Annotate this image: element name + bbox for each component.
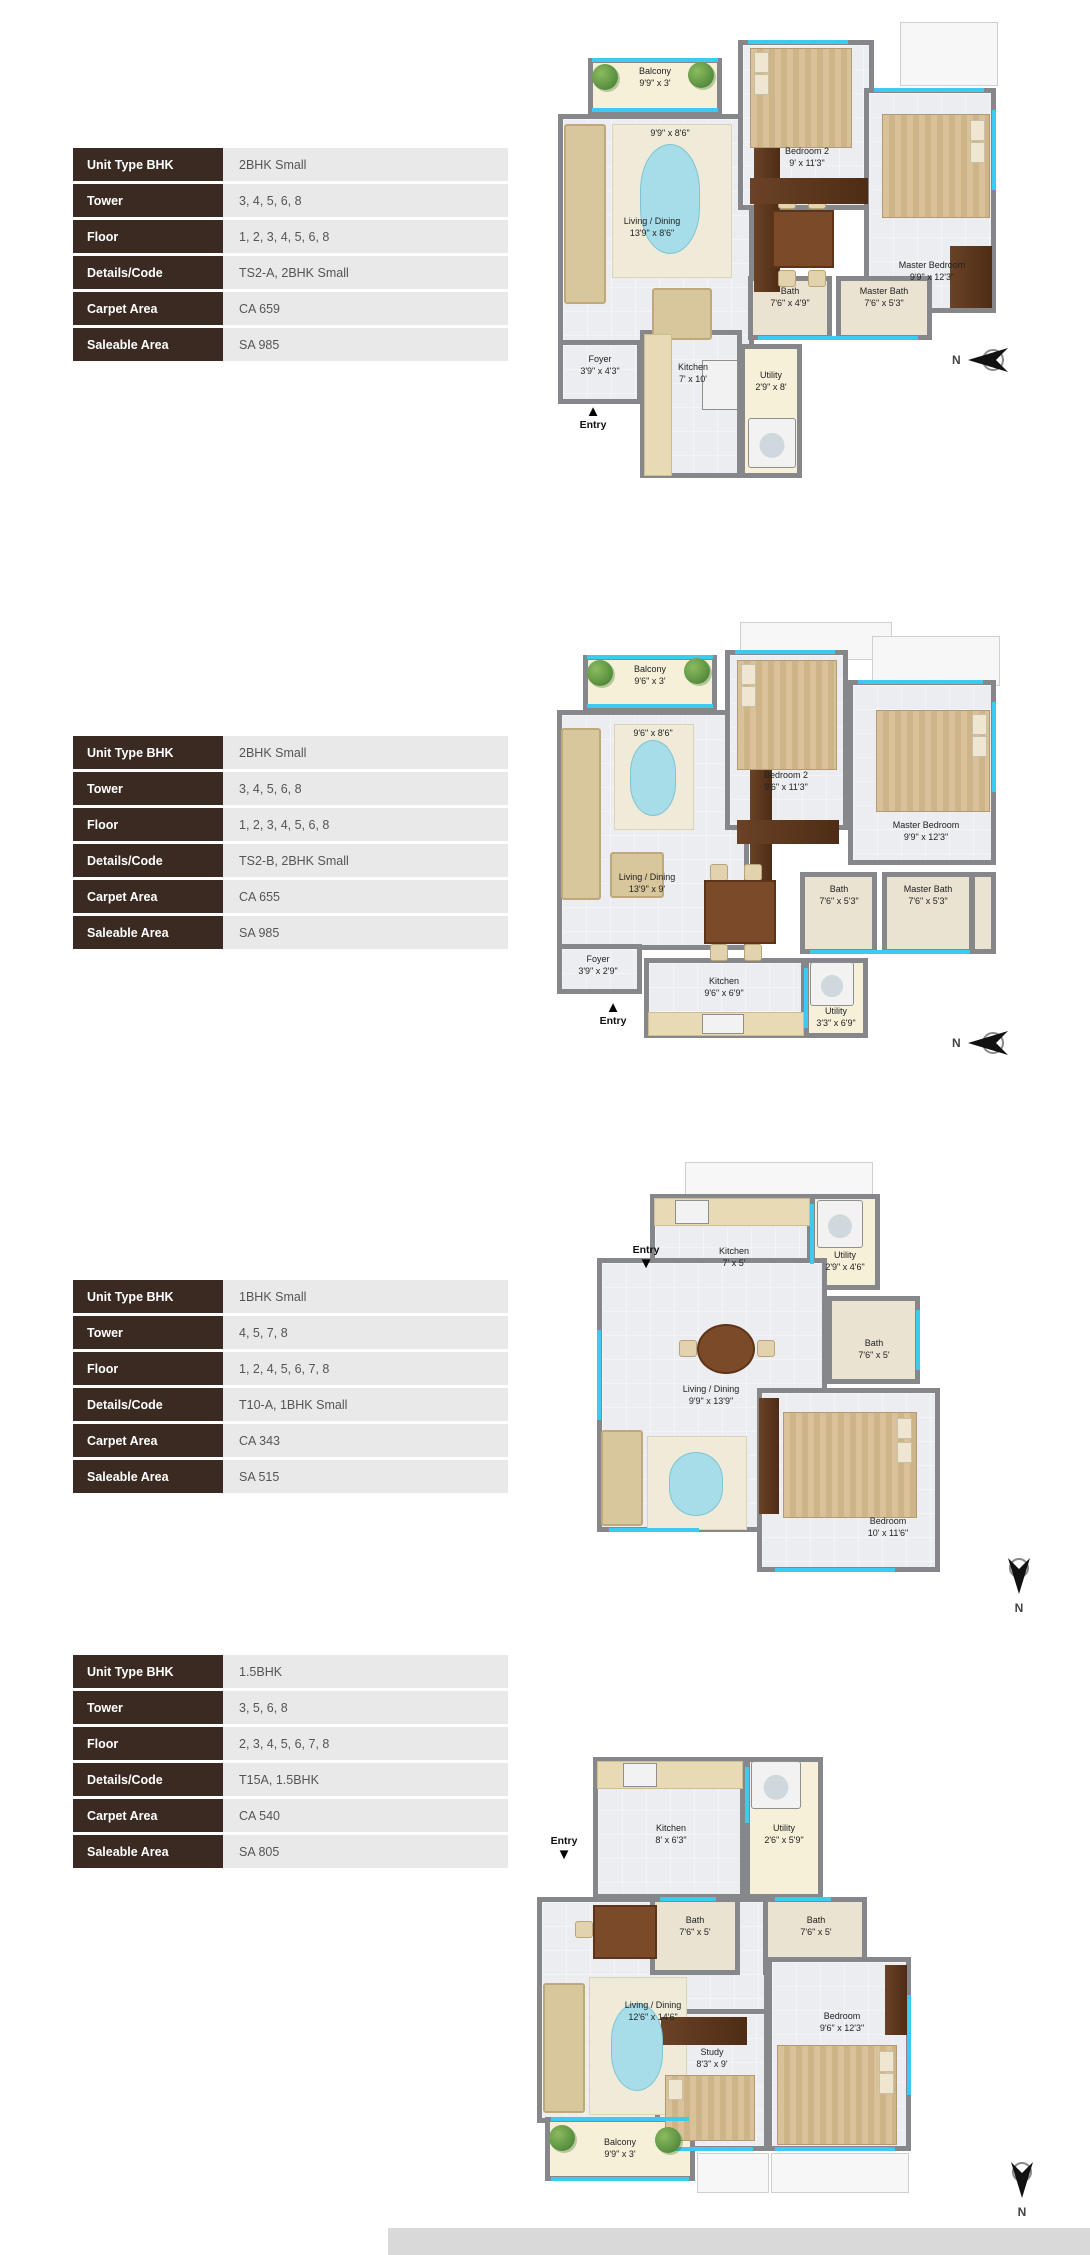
window	[597, 1330, 601, 1420]
pillow	[879, 2051, 894, 2072]
floorplan-ts2a: Balcony9'9" x 3' 9'9" x 8'6" Bedroom 29'…	[552, 20, 1000, 482]
room-dims: 7'6" x 5'3"	[840, 298, 928, 310]
room-dims: 12'6" x 14'6"	[593, 2012, 713, 2024]
room-name: Living / Dining	[593, 2000, 713, 2012]
room-dims: 2'9" x 4'6"	[811, 1262, 879, 1274]
entry-arrow-icon: ▲	[570, 404, 616, 419]
room-name: Kitchen	[699, 1246, 769, 1258]
table-row-value: SA 985	[223, 328, 508, 361]
window	[748, 40, 848, 44]
room-name: Bath	[655, 1915, 735, 1927]
chair	[778, 270, 796, 287]
table-row-label: Saleable Area	[73, 1835, 223, 1868]
room-dims: 2'9" x 8'	[744, 382, 798, 394]
table-row-label: Unit Type BHK	[73, 1655, 223, 1688]
chair	[744, 944, 762, 961]
entry-marker: Entry▼	[623, 1244, 669, 1271]
room-label-living: Living / Dining13'9" x 9'	[587, 872, 707, 895]
room-dims: 9'9" x 3'	[615, 78, 695, 90]
entry-arrow-icon: ▼	[541, 1847, 587, 1862]
room-name: Bedroom 2	[730, 770, 842, 782]
table-row-value: 1, 2, 3, 4, 5, 6, 8	[223, 220, 508, 253]
wardrobe	[759, 1398, 779, 1514]
washer-icon	[751, 1761, 801, 1809]
table-row-label: Saleable Area	[73, 328, 223, 361]
compass-icon	[1007, 2160, 1037, 2200]
room-name: Utility	[744, 370, 798, 382]
washer-icon	[817, 1200, 863, 1248]
chair	[575, 1921, 593, 1938]
room-label-bedroom2: Bedroom 29'6" x 11'3"	[730, 770, 842, 793]
table-row-label: Tower	[73, 184, 223, 217]
room-dims: 9'6" x 6'9"	[674, 988, 774, 1000]
ac-ledge	[685, 1162, 873, 1196]
table-row-value: 1, 2, 3, 4, 5, 6, 8	[223, 808, 508, 841]
room-name: Living / Dining	[587, 872, 707, 884]
table-row-value: TS2-B, 2BHK Small	[223, 844, 508, 877]
dining-table	[697, 1324, 755, 1374]
pillow	[879, 2073, 894, 2094]
room-dims: 13'9" x 9'	[587, 884, 707, 896]
room-label-living: Living / Dining9'9" x 13'9"	[651, 1384, 771, 1407]
compass-icon	[1004, 1556, 1034, 1596]
room-dims: 9' x 11'3"	[750, 158, 864, 170]
room-label-master-bath: Master Bath7'6" x 5'3"	[840, 286, 928, 309]
table-row: Floor1, 2, 3, 4, 5, 6, 8	[73, 808, 508, 841]
table-row-label: Carpet Area	[73, 1799, 223, 1832]
room-label-bath2: Bath7'6" x 5'	[771, 1915, 861, 1938]
room-label-bath: Bath7'6" x 4'9"	[752, 286, 828, 309]
room-name: Master Bath	[840, 286, 928, 298]
chair	[744, 864, 762, 881]
kitchen-counter	[644, 334, 672, 476]
entry-label: Entry	[590, 1015, 636, 1027]
table-row-value: 1, 2, 4, 5, 6, 7, 8	[223, 1352, 508, 1385]
table-row-label: Tower	[73, 1316, 223, 1349]
table-row-value: CA 343	[223, 1424, 508, 1457]
entry-arrow-icon: ▼	[623, 1256, 669, 1271]
chair	[757, 1340, 775, 1357]
room-label-bath1: Bath7'6" x 5'	[655, 1915, 735, 1938]
room-label-rug: 9'6" x 8'6"	[618, 728, 688, 740]
room-dims: 7' x 10'	[658, 374, 728, 386]
table-row-value: SA 515	[223, 1460, 508, 1493]
room-name: Kitchen	[658, 362, 728, 374]
room-name: Bath	[771, 1915, 861, 1927]
table-row-value: CA 540	[223, 1799, 508, 1832]
entry-marker: ▲Entry	[570, 404, 616, 431]
pillow	[754, 52, 769, 73]
table-row: Floor1, 2, 3, 4, 5, 6, 8	[73, 220, 508, 253]
room-label-bath: Bath7'6" x 5'3"	[804, 884, 874, 907]
room-name: Kitchen	[631, 1823, 711, 1835]
room-label-master-bedroom: Master Bedroom9'9" x 12'3"	[880, 260, 984, 283]
room-dims: 7'6" x 5'3"	[804, 896, 874, 908]
dining-table	[704, 880, 776, 944]
room-dims: 8' x 6'3"	[631, 1835, 711, 1847]
room-label-bath: Bath7'6" x 5'	[837, 1338, 911, 1361]
spec-table-t10a: Unit Type BHK1BHK Small Tower4, 5, 7, 8 …	[73, 1280, 508, 1496]
chair	[808, 270, 826, 287]
bottom-strip	[388, 2228, 1090, 2255]
pillow	[741, 664, 756, 685]
brochure-page: Unit Type BHK2BHK Small Tower3, 4, 5, 6,…	[0, 0, 1090, 2255]
pillow	[970, 120, 985, 141]
room-dims: 2'6" x 5'9"	[749, 1835, 819, 1847]
window	[810, 950, 970, 954]
pillow	[972, 714, 987, 735]
compass: N	[1005, 2160, 1039, 2219]
floorplan-ts2b: Balcony9'6" x 3' 9'6" x 8'6" Bedroom 29'…	[552, 622, 1000, 1042]
wardrobe	[750, 178, 868, 204]
window	[660, 1897, 716, 1901]
ac-ledge	[697, 2153, 769, 2193]
chair	[679, 1340, 697, 1357]
table-row-label: Unit Type BHK	[73, 1280, 223, 1313]
compass-icon	[966, 345, 1010, 375]
room-name: Study	[677, 2047, 747, 2059]
table-row-label: Details/Code	[73, 1763, 223, 1796]
table-row-label: Carpet Area	[73, 1424, 223, 1457]
table-row: Floor1, 2, 4, 5, 6, 7, 8	[73, 1352, 508, 1385]
room-label-living: Living / Dining13'9" x 8'6"	[592, 216, 712, 239]
room-dims: 7'6" x 5'	[655, 1927, 735, 1939]
pillow	[668, 2079, 683, 2100]
floorplan-t15a: Kitchen8' x 6'3" Utility2'6" x 5'9" Bath…	[535, 1745, 915, 2207]
room-label-balcony: Balcony9'9" x 3'	[615, 66, 695, 89]
table-row-value: 1BHK Small	[223, 1280, 508, 1313]
window	[916, 1310, 920, 1370]
spec-table-ts2b: Unit Type BHK2BHK Small Tower3, 4, 5, 6,…	[73, 736, 508, 952]
room-dims: 3'9" x 2'9"	[562, 966, 634, 978]
armchair	[652, 288, 712, 340]
window	[874, 88, 984, 92]
room-name: Bedroom	[797, 2011, 887, 2023]
rug-oval	[630, 740, 676, 816]
room-dims: 9'9" x 13'9"	[651, 1396, 771, 1408]
room-name: Foyer	[562, 954, 634, 966]
room-name: Bedroom	[833, 1516, 943, 1528]
compass-icon	[966, 1028, 1010, 1058]
room-label-master-bath: Master Bath7'6" x 5'3"	[886, 884, 970, 907]
room-label-master-bedroom: Master Bedroom9'9" x 12'3"	[866, 820, 986, 843]
stove-icon	[675, 1200, 709, 1224]
kitchen-counter	[597, 1761, 743, 1789]
table-row-value: SA 985	[223, 916, 508, 949]
room-label-rug: 9'9" x 8'6"	[630, 128, 710, 140]
spec-table-t15a: Unit Type BHK1.5BHK Tower3, 5, 6, 8 Floo…	[73, 1655, 508, 1871]
window	[907, 1995, 911, 2095]
room-dims: 3'3" x 6'9"	[804, 1018, 868, 1030]
table-row-value: 1.5BHK	[223, 1655, 508, 1688]
table-row: Unit Type BHK1BHK Small	[73, 1280, 508, 1313]
table-row: Carpet AreaCA 659	[73, 292, 508, 325]
table-row: Tower3, 4, 5, 6, 8	[73, 184, 508, 217]
table-row-label: Unit Type BHK	[73, 148, 223, 181]
room-label-balcony: Balcony9'9" x 3'	[575, 2137, 665, 2160]
sofa	[564, 124, 606, 304]
table-row-value: 3, 5, 6, 8	[223, 1691, 508, 1724]
room-dims: 9'9" x 8'6"	[630, 128, 710, 140]
room-name: Utility	[749, 1823, 819, 1835]
room-dims: 9'6" x 3'	[610, 676, 690, 688]
table-row-label: Saleable Area	[73, 1460, 223, 1493]
room-dims: 7'6" x 5'	[771, 1927, 861, 1939]
room-dims: 7'6" x 4'9"	[752, 298, 828, 310]
wardrobe	[737, 820, 839, 844]
room-label-foyer: Foyer3'9" x 4'3"	[564, 354, 636, 377]
chair	[710, 944, 728, 961]
table-row-label: Tower	[73, 772, 223, 805]
room-label-utility: Utility3'3" x 6'9"	[804, 1006, 868, 1029]
room-name: Balcony	[575, 2137, 665, 2149]
ac-ledge	[900, 22, 998, 86]
ac-ledge	[771, 2153, 909, 2193]
table-row: Carpet AreaCA 343	[73, 1424, 508, 1457]
compass: N	[1002, 1556, 1036, 1615]
table-row-label: Details/Code	[73, 256, 223, 289]
floorplan-t10a: Kitchen7' x 5' Utility2'9" x 4'6" Bath7'…	[585, 1160, 950, 1592]
room-dims: 7' x 5'	[699, 1258, 769, 1270]
window	[775, 2147, 895, 2151]
window	[758, 336, 918, 340]
window	[609, 1528, 699, 1532]
spec-table-ts2a: Unit Type BHK2BHK Small Tower3, 4, 5, 6,…	[73, 148, 508, 364]
table-row-value: CA 659	[223, 292, 508, 325]
wardrobe	[885, 1965, 907, 2035]
room-name: Living / Dining	[592, 216, 712, 228]
plant-icon	[549, 2125, 575, 2151]
room-label-bedroom2: Bedroom 29' x 11'3"	[750, 146, 864, 169]
window	[992, 702, 996, 792]
table-row-label: Floor	[73, 1352, 223, 1385]
table-row: Saleable AreaSA 985	[73, 916, 508, 949]
table-row: Details/CodeTS2-B, 2BHK Small	[73, 844, 508, 877]
table-row: Carpet AreaCA 540	[73, 1799, 508, 1832]
window	[745, 1767, 749, 1823]
table-row: Details/CodeTS2-A, 2BHK Small	[73, 256, 508, 289]
room-dims: 9'6" x 8'6"	[618, 728, 688, 740]
chair	[710, 864, 728, 881]
room-name: Foyer	[564, 354, 636, 366]
room-dims: 9'6" x 11'3"	[730, 782, 842, 794]
dining-table	[772, 210, 834, 268]
room-label-utility: Utility2'9" x 4'6"	[811, 1250, 879, 1273]
table-row: Tower3, 4, 5, 6, 8	[73, 772, 508, 805]
room-dims: 9'6" x 12'3"	[797, 2023, 887, 2035]
room-name: Balcony	[615, 66, 695, 78]
table-row-label: Floor	[73, 220, 223, 253]
washer-icon	[810, 962, 854, 1006]
window	[592, 108, 718, 112]
room-name: Bath	[837, 1338, 911, 1350]
stove-icon	[623, 1763, 657, 1787]
stove-icon	[702, 1014, 744, 1034]
table-row-value: 3, 4, 5, 6, 8	[223, 184, 508, 217]
pillow	[754, 74, 769, 95]
room-label-kitchen: Kitchen9'6" x 6'9"	[674, 976, 774, 999]
room-label-utility: Utility2'9" x 8'	[744, 370, 798, 393]
table-row: Unit Type BHK1.5BHK	[73, 1655, 508, 1688]
entry-marker: Entry▼	[541, 1835, 587, 1862]
room-label-foyer: Foyer3'9" x 2'9"	[562, 954, 634, 977]
sink-nook	[970, 872, 996, 954]
compass-n-label: N	[952, 353, 961, 367]
room-label-utility: Utility2'6" x 5'9"	[749, 1823, 819, 1846]
room-dims: 3'9" x 4'3"	[564, 366, 636, 378]
window	[551, 2117, 689, 2121]
rug-oval	[669, 1452, 723, 1516]
table-row-label: Tower	[73, 1691, 223, 1724]
table-row: Carpet AreaCA 655	[73, 880, 508, 913]
room-label-bedroom: Bedroom9'6" x 12'3"	[797, 2011, 887, 2034]
room-name: Utility	[804, 1006, 868, 1018]
room-name: Bath	[804, 884, 874, 896]
table-row: Saleable AreaSA 985	[73, 328, 508, 361]
table-row-label: Details/Code	[73, 844, 223, 877]
pillow	[897, 1442, 912, 1463]
window	[735, 650, 835, 654]
table-row: Details/CodeT10-A, 1BHK Small	[73, 1388, 508, 1421]
room-dims: 7'6" x 5'3"	[886, 896, 970, 908]
table-row: Tower4, 5, 7, 8	[73, 1316, 508, 1349]
table-row-label: Carpet Area	[73, 880, 223, 913]
table-row: Unit Type BHK2BHK Small	[73, 148, 508, 181]
table-row-value: 2BHK Small	[223, 148, 508, 181]
table-row: Unit Type BHK2BHK Small	[73, 736, 508, 769]
pillow	[972, 736, 987, 757]
table-row-value: T15A, 1.5BHK	[223, 1763, 508, 1796]
pillow	[741, 686, 756, 707]
table-row: Tower3, 5, 6, 8	[73, 1691, 508, 1724]
table-row: Saleable AreaSA 805	[73, 1835, 508, 1868]
table-row-label: Carpet Area	[73, 292, 223, 325]
room-name: Master Bath	[886, 884, 970, 896]
window	[587, 704, 713, 708]
table-row-label: Floor	[73, 1727, 223, 1760]
pillow	[897, 1418, 912, 1439]
table-row-value: CA 655	[223, 880, 508, 913]
ac-ledge	[872, 636, 1000, 686]
washer-icon	[748, 418, 796, 468]
room-name: Living / Dining	[651, 1384, 771, 1396]
room-name: Master Bedroom	[880, 260, 984, 272]
entry-marker: ▲Entry	[590, 1000, 636, 1027]
compass-n-label: N	[952, 1036, 961, 1050]
table-row-value: TS2-A, 2BHK Small	[223, 256, 508, 289]
table-row: Details/CodeT15A, 1.5BHK	[73, 1763, 508, 1796]
sofa	[601, 1430, 643, 1526]
compass-n-label: N	[1005, 2205, 1039, 2219]
table-row-label: Saleable Area	[73, 916, 223, 949]
table-row: Saleable AreaSA 515	[73, 1460, 508, 1493]
table-row-label: Floor	[73, 808, 223, 841]
room-dims: 8'3" x 9'	[677, 2059, 747, 2071]
entry-arrow-icon: ▲	[590, 1000, 636, 1015]
sofa	[543, 1983, 585, 2113]
entry-label: Entry	[570, 419, 616, 431]
window	[775, 1897, 831, 1901]
table-row-value: 3, 4, 5, 6, 8	[223, 772, 508, 805]
window	[858, 680, 983, 684]
room-dims: 9'9" x 12'3"	[880, 272, 984, 284]
room-label-living: Living / Dining12'6" x 14'6"	[593, 2000, 713, 2023]
room-name: Master Bedroom	[866, 820, 986, 832]
table-row-label: Details/Code	[73, 1388, 223, 1421]
room-name: Balcony	[610, 664, 690, 676]
room-dims: 9'9" x 3'	[575, 2149, 665, 2161]
table-row-value: T10-A, 1BHK Small	[223, 1388, 508, 1421]
room-label-bedroom: Bedroom10' x 11'6"	[833, 1516, 943, 1539]
table-row: Floor2, 3, 4, 5, 6, 7, 8	[73, 1727, 508, 1760]
compass-n-label: N	[1002, 1601, 1036, 1615]
window	[775, 1568, 895, 1572]
room-label-kitchen: Kitchen7' x 5'	[699, 1246, 769, 1269]
room-dims: 9'9" x 12'3"	[866, 832, 986, 844]
room-dims: 10' x 11'6"	[833, 1528, 943, 1540]
table-row-value: 2, 3, 4, 5, 6, 7, 8	[223, 1727, 508, 1760]
room-name: Bedroom 2	[750, 146, 864, 158]
room-label-study: Study8'3" x 9'	[677, 2047, 747, 2070]
room-label-kitchen: Kitchen8' x 6'3"	[631, 1823, 711, 1846]
table-row-value: 4, 5, 7, 8	[223, 1316, 508, 1349]
compass: N	[952, 345, 1010, 375]
room-name: Kitchen	[674, 976, 774, 988]
room-dims: 7'6" x 5'	[837, 1350, 911, 1362]
dining-table	[593, 1905, 657, 1959]
pillow	[970, 142, 985, 163]
window	[992, 110, 996, 190]
room-dims: 13'9" x 8'6"	[592, 228, 712, 240]
table-row-value: 2BHK Small	[223, 736, 508, 769]
room-label-kitchen: Kitchen7' x 10'	[658, 362, 728, 385]
window	[551, 2177, 689, 2181]
compass: N	[952, 1028, 1010, 1058]
room-name: Bath	[752, 286, 828, 298]
table-row-label: Unit Type BHK	[73, 736, 223, 769]
room-name: Utility	[811, 1250, 879, 1262]
room-label-balcony: Balcony9'6" x 3'	[610, 664, 690, 687]
table-row-value: SA 805	[223, 1835, 508, 1868]
